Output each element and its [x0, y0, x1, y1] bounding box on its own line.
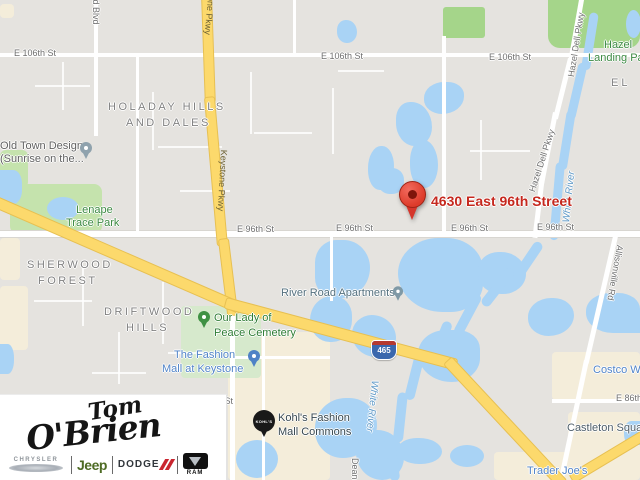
- ram-head-icon: [189, 457, 201, 466]
- poi-label-trader-joes: Trader Joe's: [527, 465, 587, 477]
- street-label-e96th: E 96th St: [537, 222, 574, 232]
- street-label-keystone-top: Keystone Pkwy: [203, 0, 218, 35]
- road-vertical: [293, 0, 296, 55]
- street-label-keystone: Keystone Pkwy: [216, 149, 229, 211]
- lake: [528, 298, 574, 336]
- pin-tail: [83, 153, 89, 159]
- interstate-465-shield: 465: [371, 340, 397, 360]
- poi-label-old-town-design: (Sunrise on the...: [0, 153, 84, 165]
- minor-street: [254, 132, 312, 134]
- brand-divider: [71, 456, 72, 474]
- street-label-e106th: E 106th St: [489, 52, 531, 62]
- cemetery-label: Peace Cemetery: [214, 327, 296, 339]
- road-mall-street: [230, 356, 330, 359]
- pond: [236, 440, 278, 478]
- pin-dot: [252, 354, 256, 358]
- pin-tail: [201, 322, 207, 328]
- street-label-field-blvd: field Blvd: [91, 0, 101, 25]
- minor-street: [470, 150, 530, 152]
- old-town-design-pin[interactable]: [80, 142, 92, 159]
- pin-tail: [261, 431, 267, 437]
- commercial-area: [0, 286, 28, 350]
- dodge-wordmark: DODGE: [118, 459, 160, 470]
- marker-address-label: 4630 East 96th Street: [431, 193, 572, 209]
- park-label-hazel-landing: Landing Park: [588, 52, 640, 64]
- street-label-e106th: E 106th St: [321, 51, 363, 61]
- pond: [396, 102, 432, 146]
- poi-label-fashion-mall: The Fashion: [174, 349, 235, 361]
- kohls-logo-circle: KOHL'S: [253, 410, 275, 432]
- pin-tail: [395, 296, 400, 301]
- neighborhood-holaday-hills: HOLADAY HILLS: [108, 101, 226, 113]
- minor-street: [332, 88, 334, 154]
- park-label-hazel-landing: Hazel: [604, 39, 632, 51]
- poi-label-kohls: Mall Commons: [278, 426, 351, 438]
- map-embed[interactable]: 465 E 106th St E 106th St E 106th St E 9…: [0, 0, 640, 480]
- park-label-lenape: Lenape: [76, 204, 113, 216]
- road-mall-street: [262, 332, 265, 480]
- park-label-lenape: Trace Park: [66, 217, 119, 229]
- minor-street: [92, 372, 146, 374]
- poi-label-kohls: Kohl's Fashion: [278, 412, 350, 424]
- jeep-logo: Jeep: [77, 457, 107, 473]
- chrysler-logo: CHRYSLER: [6, 457, 66, 472]
- street-label-dean: Dean: [350, 458, 360, 480]
- marker-hole: [408, 190, 417, 199]
- pond: [0, 344, 14, 374]
- street-label-e96th: E 96th St: [237, 224, 274, 234]
- pond: [450, 445, 484, 467]
- street-label-e86th-right: E 86th: [616, 393, 640, 403]
- street-label-e106th: E 106th St: [14, 48, 56, 58]
- shield-number: 465: [372, 345, 396, 357]
- poi-label-costco: Costco Wholesale: [593, 364, 640, 376]
- ram-wordmark: RAM: [187, 470, 204, 476]
- pin-dot: [84, 146, 88, 150]
- pond: [337, 20, 357, 43]
- poi-label-river-road-apartments: River Road Apartments: [281, 287, 395, 299]
- chrysler-wing-icon: [9, 464, 63, 472]
- poi-label-fashion-mall: Mall at Keystone: [162, 363, 243, 375]
- pond: [398, 438, 442, 464]
- cemetery-pin[interactable]: [198, 311, 210, 328]
- neighborhood-sherwood-forest: SHERWOOD: [27, 259, 113, 271]
- neighborhood-partial-east: EL: [611, 77, 630, 89]
- pin-tail: [251, 361, 257, 367]
- green-area: [443, 7, 485, 38]
- pin-dot: [396, 290, 399, 293]
- ram-badge-icon: [183, 453, 208, 469]
- commercial-area: [0, 238, 20, 280]
- poi-label-castleton-square: Castleton Square: [567, 422, 640, 434]
- neighborhood-holaday-hills: AND DALES: [126, 117, 211, 129]
- pin-dot: [202, 315, 206, 319]
- minor-street: [338, 70, 384, 72]
- kohls-logo-text: KOHL'S: [256, 419, 273, 424]
- minor-street: [118, 332, 120, 384]
- white-river-segment: [393, 392, 408, 443]
- dealer-logo: Tom O'Brien CHRYSLER Jeep DODGE RAM: [0, 394, 227, 480]
- fashion-mall-pin[interactable]: [248, 350, 260, 367]
- ram-logo: RAM: [183, 453, 208, 476]
- brand-divider: [177, 456, 178, 474]
- street-label-e96th: E 96th St: [336, 223, 373, 233]
- dodge-logo: DODGE: [118, 459, 172, 470]
- brand-divider: [112, 456, 113, 474]
- poi-label-old-town-design: Old Town Design: [0, 140, 83, 152]
- commercial-area: [0, 4, 14, 18]
- water-label-white-river: White River: [364, 380, 380, 433]
- dealer-name-script-bottom: O'Brien: [24, 405, 162, 458]
- neighborhood-sherwood-forest: FOREST: [38, 275, 98, 287]
- minor-street: [250, 72, 252, 134]
- street-label-e96th: E 96th St: [451, 223, 488, 233]
- location-marker[interactable]: [398, 181, 428, 221]
- chrysler-wordmark: CHRYSLER: [14, 457, 59, 463]
- road-vertical: [136, 56, 139, 234]
- neighborhood-driftwood-hills: DRIFTWOOD: [104, 306, 194, 318]
- kohls-store-pin[interactable]: KOHL'S: [253, 410, 275, 438]
- cemetery-label: Our Lady of: [214, 312, 271, 324]
- river-road-apartments-pin[interactable]: [393, 286, 403, 300]
- brand-logos-row: CHRYSLER Jeep DODGE RAM: [6, 453, 208, 476]
- minor-street: [62, 62, 64, 110]
- neighborhood-driftwood-hills: HILLS: [126, 322, 169, 334]
- pond: [626, 10, 640, 38]
